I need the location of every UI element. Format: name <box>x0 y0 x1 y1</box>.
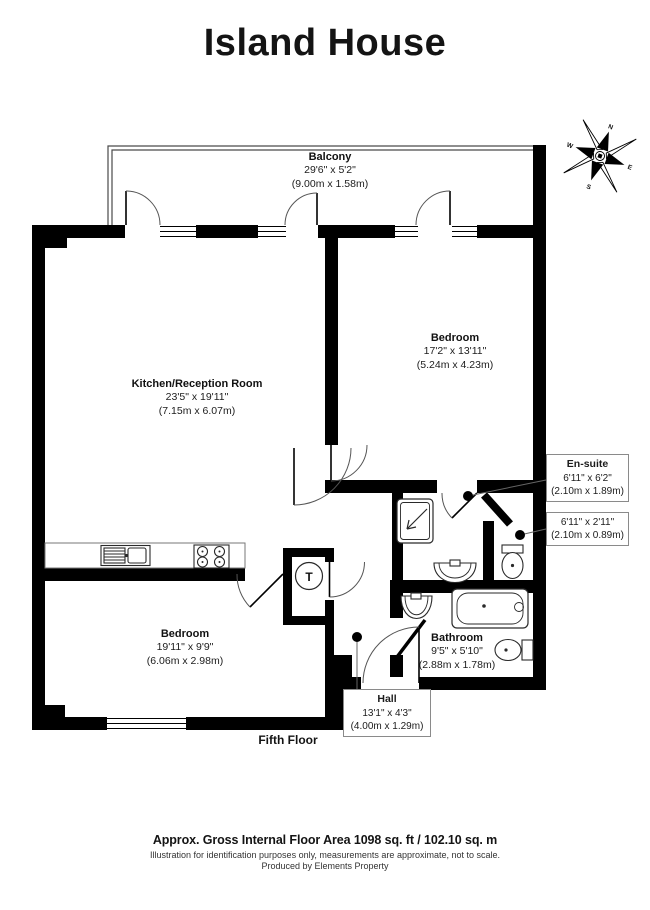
footer-disclaimer: Illustration for identification purposes… <box>0 850 650 860</box>
floor-name: Fifth Floor <box>238 733 338 747</box>
kitchen-sink-icon <box>101 546 150 566</box>
footer-credit: Produced by Elements Property <box>0 861 650 871</box>
tank-icon: T <box>296 563 323 590</box>
balcony-name: Balcony <box>200 150 460 164</box>
bedroom-right-name: Bedroom <box>375 331 535 345</box>
footer-area: Approx. Gross Internal Floor Area 1098 s… <box>0 833 650 847</box>
bedroom-left-name: Bedroom <box>105 627 265 641</box>
window-top-2 <box>258 225 286 238</box>
compass-n-label: N <box>607 123 614 131</box>
bedroom-left-label: Bedroom 19'11" x 9'9" (6.06m x 2.98m) <box>105 627 265 669</box>
bedroom-right-dims-imperial: 17'2" x 13'11" <box>375 345 535 359</box>
hob-icon <box>194 545 229 568</box>
hall-dims-metric: (4.00m x 1.29m) <box>345 720 429 733</box>
ensuite-label-box: En-suite 6'11" x 6'2" (2.10m x 1.89m) <box>546 454 629 502</box>
bedroom-right-dims-metric: (5.24m x 4.23m) <box>375 359 535 373</box>
compass-icon: N E S W <box>554 112 644 203</box>
window-top-4 <box>452 225 477 238</box>
window-bottom <box>107 717 186 730</box>
footer: Approx. Gross Internal Floor Area 1098 s… <box>0 833 650 871</box>
hall-dims-imperial: 13'1" x 4'3" <box>345 707 429 720</box>
balcony-dims-imperial: 29'6" x 5'2" <box>200 164 460 178</box>
wc-dims-metric: (2.10m x 0.89m) <box>548 529 627 542</box>
compass-e-label: E <box>626 164 633 172</box>
kitchen-reception-dims-metric: (7.15m x 6.07m) <box>67 405 327 419</box>
bedroom-left-dims-imperial: 19'11" x 9'9" <box>105 641 265 655</box>
bathtub-icon <box>452 589 528 628</box>
window-top-3 <box>395 225 418 238</box>
shower-icon <box>397 499 433 543</box>
wc-dims-imperial: 6'11" x 2'11" <box>548 516 627 529</box>
bedroom-left-dims-metric: (6.06m x 2.98m) <box>105 655 265 669</box>
ensuite-dims-imperial: 6'11" x 6'2" <box>548 472 627 485</box>
compass-w-label: W <box>566 142 575 151</box>
ensuite-dims-metric: (2.10m x 1.89m) <box>548 485 627 498</box>
kitchen-reception-name: Kitchen/Reception Room <box>67 377 327 391</box>
hall-label-box: Hall 13'1" x 4'3" (4.00m x 1.29m) <box>343 689 431 737</box>
bathroom-name: Bathroom <box>398 631 516 645</box>
compass-s-label: S <box>585 183 592 191</box>
wc-label-box: 6'11" x 2'11" (2.10m x 0.89m) <box>546 512 629 546</box>
tank-label: T <box>305 570 313 584</box>
balcony-label: Balcony 29'6" x 5'2" (9.00m x 1.58m) <box>200 150 460 192</box>
bathroom-basin-icon <box>401 593 432 619</box>
ensuite-name: En-suite <box>548 458 627 472</box>
bathroom-dims-imperial: 9'5" x 5'10" <box>398 645 516 659</box>
bathroom-dims-metric: (2.88m x 1.78m) <box>398 659 516 673</box>
floorplan-page: Island House <box>0 0 650 910</box>
wc-toilet-icon <box>502 545 523 579</box>
kitchen-reception-dims-imperial: 23'5" x 19'11" <box>67 391 327 405</box>
window-top-1 <box>160 225 196 238</box>
hall-name: Hall <box>345 693 429 707</box>
bedroom-right-label: Bedroom 17'2" x 13'11" (5.24m x 4.23m) <box>375 331 535 373</box>
kitchen-reception-label: Kitchen/Reception Room 23'5" x 19'11" (7… <box>67 377 327 419</box>
bathroom-label: Bathroom 9'5" x 5'10" (2.88m x 1.78m) <box>398 631 516 673</box>
ensuite-basin-icon <box>434 560 476 583</box>
balcony-dims-metric: (9.00m x 1.58m) <box>200 178 460 192</box>
